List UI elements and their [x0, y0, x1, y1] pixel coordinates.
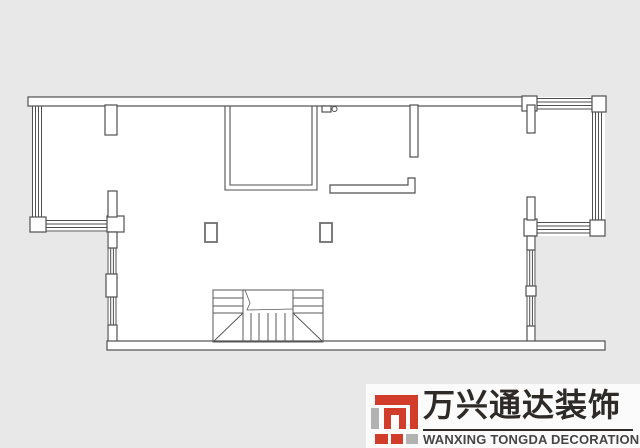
column-top-right-b [592, 96, 606, 112]
door-symbol-rect [322, 106, 331, 112]
logo-divider [423, 429, 633, 431]
top-wall [28, 97, 523, 106]
logo-block [410, 405, 418, 429]
column-left-outer [30, 217, 46, 232]
window-sill-right [526, 286, 536, 296]
screenshot-stage: 万兴通达装饰 WANXING TONGDA DECORATION [0, 0, 640, 448]
wall-stub-right-win-bottom [527, 326, 535, 342]
pillar-left [205, 223, 217, 242]
logo-block [391, 434, 403, 444]
wall-stub-left-win-top [108, 232, 117, 248]
logo-block [406, 434, 418, 444]
company-name-english: WANXING TONGDA DECORATION [423, 432, 635, 447]
floor-plan [0, 0, 640, 448]
wall-stub-right-mid [527, 197, 535, 220]
column-left-inner [107, 216, 124, 232]
wall-stub-right-win-top [527, 236, 535, 250]
logo-block [375, 434, 388, 444]
wall-stub-left-win-bottom [108, 325, 117, 342]
wall-stub-center [410, 105, 418, 157]
wall-stub-right-upper [527, 105, 535, 133]
company-logo: 万兴通达装饰 WANXING TONGDA DECORATION [366, 384, 640, 448]
company-name-chinese: 万兴通达装饰 [423, 385, 635, 425]
logo-mark-icon [371, 391, 419, 444]
logo-block [399, 415, 406, 429]
wall-stub-left-mid [108, 191, 117, 217]
pillar-right [320, 223, 332, 242]
column-right-lower [590, 220, 605, 236]
logo-block [375, 395, 418, 405]
bottom-wall [107, 341, 605, 350]
logo-block [371, 408, 379, 429]
wall-stub-left-upper [105, 105, 117, 135]
column-right-inner [524, 219, 537, 236]
window-sill-left [106, 274, 117, 297]
logo-block [384, 408, 391, 429]
